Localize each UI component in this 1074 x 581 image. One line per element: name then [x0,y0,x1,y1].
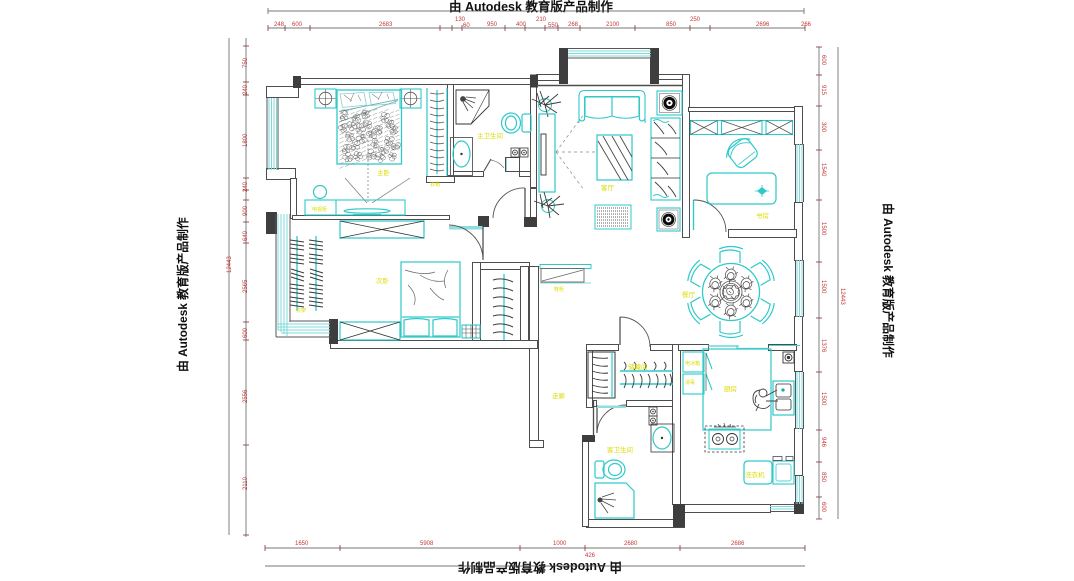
svg-text:266: 266 [801,22,812,28]
svg-text:书房: 书房 [756,211,769,220]
svg-text:客厅: 客厅 [601,183,615,192]
svg-text:鞋柜: 鞋柜 [554,286,564,293]
svg-text:由 Autodesk 教育版产品制作: 由 Autodesk 教育版产品制作 [449,0,613,14]
svg-text:衣帽: 衣帽 [430,181,440,188]
svg-text:640: 640 [243,230,249,241]
svg-text:2110: 2110 [243,476,249,490]
svg-text:主卧: 主卧 [377,168,391,177]
svg-text:1650: 1650 [295,541,309,547]
svg-text:1500: 1500 [820,222,826,236]
svg-text:240: 240 [243,181,249,192]
svg-text:60: 60 [463,23,470,29]
svg-text:衣架: 衣架 [296,307,306,314]
svg-text:由 Autodesk 教育版产品制作: 由 Autodesk 教育版产品制作 [458,560,622,575]
svg-text:电冰箱: 电冰箱 [685,360,700,367]
svg-text:210: 210 [536,17,547,23]
svg-text:12443: 12443 [839,288,845,305]
svg-text:850: 850 [666,22,677,28]
svg-text:走廊: 走廊 [552,391,566,400]
svg-text:客卫生间: 客卫生间 [607,445,633,454]
svg-text:2100: 2100 [606,22,620,28]
svg-text:750: 750 [243,57,249,68]
svg-text:946: 946 [820,437,826,448]
svg-text:1500: 1500 [820,392,826,406]
svg-text:主卫生间: 主卫生间 [477,131,503,140]
svg-text:950: 950 [487,22,498,28]
svg-text:2680: 2680 [624,541,638,547]
svg-text:1800: 1800 [243,133,249,147]
svg-text:250: 250 [690,17,701,23]
svg-text:2683: 2683 [379,22,393,28]
svg-text:426: 426 [585,553,596,559]
svg-text:2565: 2565 [243,279,249,293]
svg-text:厨房: 厨房 [724,384,737,393]
svg-text:2696: 2696 [756,22,770,28]
svg-text:600: 600 [243,327,249,338]
svg-text:850: 850 [820,472,826,483]
svg-text:1376: 1376 [820,339,826,353]
svg-text:300: 300 [820,122,826,133]
svg-text:1500: 1500 [820,280,826,294]
svg-text:由 Autodesk 教育版产品制作: 由 Autodesk 教育版产品制作 [176,217,190,372]
svg-text:1540: 1540 [820,163,826,177]
svg-text:由 Autodesk 教育版产品制作: 由 Autodesk 教育版产品制作 [881,203,895,358]
svg-text:次卧: 次卧 [376,276,390,285]
svg-text:600: 600 [820,55,826,66]
svg-text:550: 550 [548,23,559,29]
svg-text:储藏间: 储藏间 [628,362,648,371]
svg-text:600: 600 [820,502,826,513]
svg-text:餐厅: 餐厅 [682,290,696,299]
svg-text:1000: 1000 [553,541,567,547]
svg-text:600: 600 [292,22,303,28]
svg-text:2556: 2556 [243,389,249,403]
svg-text:2686: 2686 [731,541,745,547]
svg-text:5908: 5908 [420,541,434,547]
svg-text:400: 400 [516,22,527,28]
svg-text:248: 248 [274,22,285,28]
svg-text:消毒: 消毒 [685,379,695,386]
svg-text:915: 915 [820,85,826,96]
svg-text:900: 900 [243,205,249,216]
svg-text:240: 240 [243,84,249,95]
svg-text:电视柜: 电视柜 [312,206,327,213]
svg-text:洗衣机: 洗衣机 [745,470,765,479]
svg-text:268: 268 [568,22,579,28]
svg-text:12443: 12443 [227,256,233,273]
